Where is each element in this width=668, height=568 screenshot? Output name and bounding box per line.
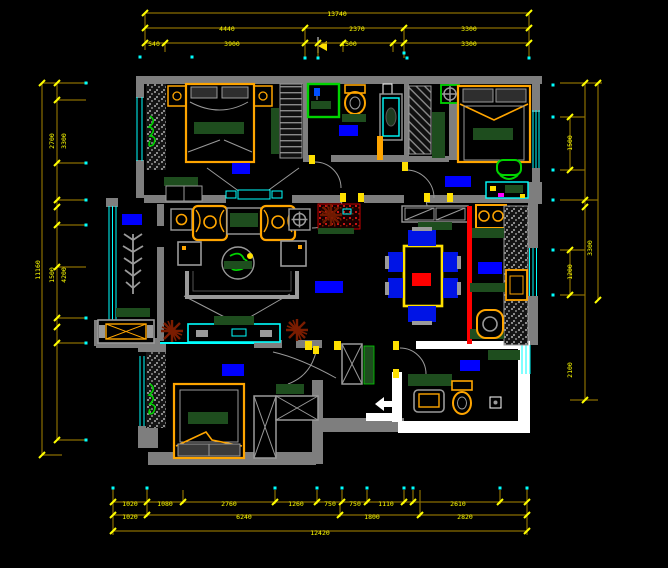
tv-unit xyxy=(226,190,282,199)
room-label-bedroom-bottom xyxy=(222,364,244,376)
floor-plan-canvas: 1374044402370330054039001500330010201080… xyxy=(0,0,668,568)
kitchen xyxy=(467,205,528,345)
desk-chair xyxy=(497,160,521,179)
reference-dot xyxy=(191,56,194,59)
reference-dot xyxy=(85,342,88,345)
shelf xyxy=(276,384,304,394)
ottoman xyxy=(281,241,306,266)
reference-dot xyxy=(316,487,319,490)
reference-dot xyxy=(552,249,555,252)
reference-dot xyxy=(526,487,529,490)
dimension-label: 3300 xyxy=(586,240,594,256)
living-room xyxy=(161,204,360,342)
vent xyxy=(383,84,392,94)
dimension-label: 4440 xyxy=(219,25,235,33)
dimension-label: 3300 xyxy=(60,133,68,149)
dimension-label: 1200 xyxy=(566,264,574,280)
toilet xyxy=(452,381,472,414)
dimension-label: 2820 xyxy=(457,513,473,521)
dimension-label: 3300 xyxy=(461,40,477,48)
bench xyxy=(98,320,154,343)
bedroom-bottom xyxy=(149,384,318,458)
reference-dot xyxy=(85,317,88,320)
bed xyxy=(174,384,244,458)
dimension-label: 12420 xyxy=(310,529,330,537)
wardrobe xyxy=(271,84,302,158)
sofa-center xyxy=(227,208,261,234)
divider-line xyxy=(467,206,472,344)
kitchen-stool xyxy=(477,310,503,338)
reference-dot xyxy=(403,52,406,55)
reference-dot xyxy=(85,439,88,442)
reference-dot xyxy=(112,487,115,490)
dimension-label: 11160 xyxy=(34,260,42,280)
reference-dot xyxy=(552,84,555,87)
side-table xyxy=(171,209,192,230)
planter xyxy=(116,308,150,317)
tree-icon xyxy=(123,234,143,294)
reference-dot xyxy=(552,199,555,202)
dimension-label: 540 xyxy=(148,40,160,48)
armchair xyxy=(193,206,227,240)
reference-dot xyxy=(304,57,307,60)
bathroom-top xyxy=(308,84,402,160)
reference-dot xyxy=(85,82,88,85)
counter-top xyxy=(470,283,506,292)
bed xyxy=(186,84,254,162)
dining-area xyxy=(385,206,468,325)
entry-threshold xyxy=(366,413,394,421)
room-label-bathroom-bottom xyxy=(460,360,480,371)
bedroom-top-left xyxy=(149,84,302,201)
reference-dot xyxy=(552,294,555,297)
reference-dot xyxy=(85,199,88,202)
shoe-cabinet xyxy=(342,344,374,384)
level-symbol xyxy=(318,37,327,53)
bathroom-bottom-right xyxy=(408,350,520,414)
shelf xyxy=(342,114,366,122)
plant-icon xyxy=(161,320,183,342)
reference-dot xyxy=(341,487,344,490)
reference-dot xyxy=(317,57,320,60)
dimension-label: 3900 xyxy=(224,40,240,48)
dimension-label: 3300 xyxy=(461,25,477,33)
plant-icon xyxy=(286,319,308,341)
shower xyxy=(308,84,339,117)
dimension-label: 1020 xyxy=(122,513,138,521)
stove xyxy=(476,205,506,228)
dimension-label: 1500 xyxy=(48,267,56,283)
desk xyxy=(486,182,528,198)
bed xyxy=(458,86,530,162)
shower-tray xyxy=(414,390,444,412)
dimension-label: 1020 xyxy=(122,500,138,508)
dimension-label: 2760 xyxy=(221,500,237,508)
decor-cabinet xyxy=(318,204,360,234)
reference-dot xyxy=(406,57,409,60)
room-label-living-room xyxy=(315,281,343,293)
dimension-label: 750 xyxy=(324,500,336,508)
dimension-label: 750 xyxy=(349,500,361,508)
dimension-label: 1110 xyxy=(378,500,394,508)
reference-dot xyxy=(552,169,555,172)
reference-dot xyxy=(85,224,88,227)
closet-hall xyxy=(409,86,445,158)
dining-table xyxy=(404,246,442,306)
dimension-label: 1500 xyxy=(566,135,574,151)
reference-dot xyxy=(274,487,277,490)
dimension-label: 4200 xyxy=(60,267,68,283)
door-frame xyxy=(377,136,383,160)
sink xyxy=(506,270,527,300)
floor-drain xyxy=(490,397,501,408)
reference-dot xyxy=(552,116,555,119)
wardrobe xyxy=(254,396,318,458)
dimension-label: 1260 xyxy=(288,500,304,508)
sideboard xyxy=(402,206,468,230)
counter-top xyxy=(408,374,452,386)
reference-dot xyxy=(403,487,406,490)
room-label-bathroom-top xyxy=(339,125,358,136)
reference-dot xyxy=(85,162,88,165)
dimension-label: 2100 xyxy=(566,362,574,378)
coffee-table xyxy=(222,247,254,279)
counter-top xyxy=(472,228,504,238)
reference-dot xyxy=(139,56,142,59)
dimension-label: 2610 xyxy=(450,500,466,508)
dimension-label: 13740 xyxy=(327,10,347,18)
ottoman xyxy=(178,242,201,265)
reference-dot xyxy=(499,487,502,490)
nightstand xyxy=(254,86,272,106)
entry xyxy=(342,344,396,421)
tv-cabinet xyxy=(188,316,280,342)
dimension-label: 2700 xyxy=(48,133,56,149)
dimension-label: 1800 xyxy=(364,513,380,521)
toilet xyxy=(345,85,365,114)
washbasin-cabinet xyxy=(380,94,402,140)
reference-dot xyxy=(366,487,369,490)
dimension-label: 6240 xyxy=(236,513,252,521)
counter-top xyxy=(488,350,520,360)
ceiling-fan-icon xyxy=(441,85,459,103)
room-label-hallway xyxy=(445,176,471,187)
dresser xyxy=(164,177,202,201)
dimension-label: 1500 xyxy=(341,40,357,48)
tv-sightlines xyxy=(207,168,299,192)
room-label-bedroom-top-left xyxy=(232,163,250,174)
nightstand xyxy=(168,86,186,106)
dimension-label: 2370 xyxy=(349,25,365,33)
room-label-balcony xyxy=(122,214,142,225)
reference-dot xyxy=(528,57,531,60)
room-label-kitchen xyxy=(478,262,502,274)
dimension-label: 1080 xyxy=(157,500,173,508)
balcony xyxy=(98,234,154,343)
reference-dot xyxy=(146,487,149,490)
reference-dot xyxy=(412,487,415,490)
